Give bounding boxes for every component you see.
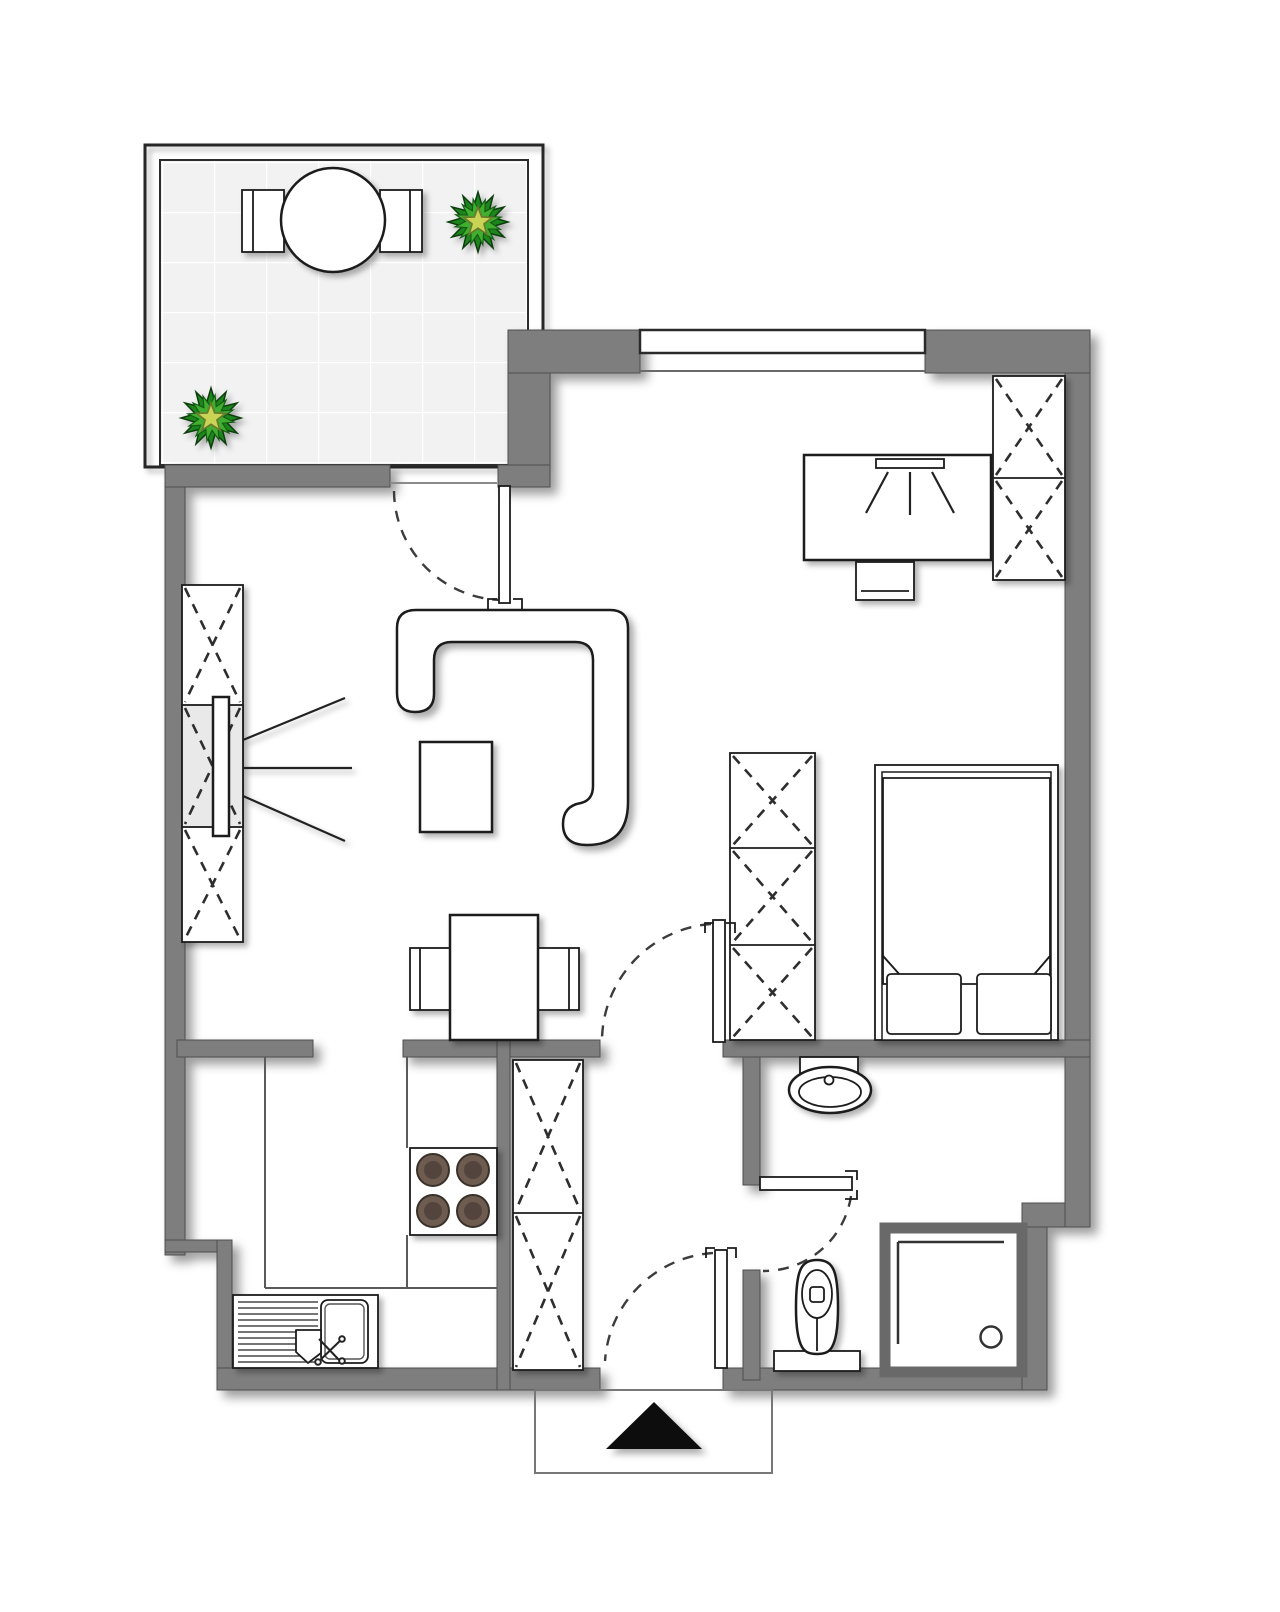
tv <box>213 697 229 836</box>
wall-segment <box>743 1057 760 1185</box>
wall-segment <box>217 1368 600 1390</box>
balcony-chair-right <box>380 190 422 252</box>
wall-segment <box>508 330 640 373</box>
washbasin <box>789 1057 871 1113</box>
door-leaf <box>760 1177 852 1190</box>
wall-segment <box>743 1270 760 1380</box>
wardrobe-bedroom <box>993 376 1065 580</box>
coffee-table <box>420 742 492 832</box>
hall-cabinet <box>513 1060 583 1370</box>
wall-segment <box>165 465 390 487</box>
pillow-left <box>887 974 961 1034</box>
window-glazing <box>640 330 925 353</box>
bed <box>875 765 1058 1040</box>
door-leaf <box>715 1250 727 1368</box>
wall-segment <box>925 330 1090 373</box>
shower-tray <box>885 1228 1022 1372</box>
desk-chair <box>856 562 914 600</box>
wall-segment <box>723 1040 1090 1057</box>
desk-lamp <box>876 459 944 468</box>
dining-chair-right <box>537 948 579 1010</box>
door-leaf <box>499 486 510 603</box>
floor-plan-canvas <box>0 0 1280 1612</box>
stove <box>410 1148 497 1235</box>
pillow-right <box>977 974 1051 1034</box>
basin-tap <box>825 1076 834 1085</box>
door-leaf <box>713 920 725 1042</box>
wall-segment <box>1065 330 1090 1227</box>
shower-drain <box>981 1327 1002 1348</box>
blanket <box>883 778 1050 984</box>
wall-segment <box>497 1040 510 1390</box>
kitchen-sink <box>233 1295 378 1368</box>
dining-table <box>450 915 538 1040</box>
dining-chair-left <box>410 948 452 1010</box>
wall-segment <box>217 1240 232 1380</box>
floor-plan-page <box>0 0 1280 1612</box>
balcony-round-table <box>281 168 385 272</box>
desk <box>804 455 991 560</box>
balcony-chair-left <box>242 190 284 252</box>
wardrobe-middle <box>730 753 815 1040</box>
shower <box>885 1228 1022 1372</box>
wall-segment <box>177 1040 313 1057</box>
wall-segment <box>498 465 550 487</box>
